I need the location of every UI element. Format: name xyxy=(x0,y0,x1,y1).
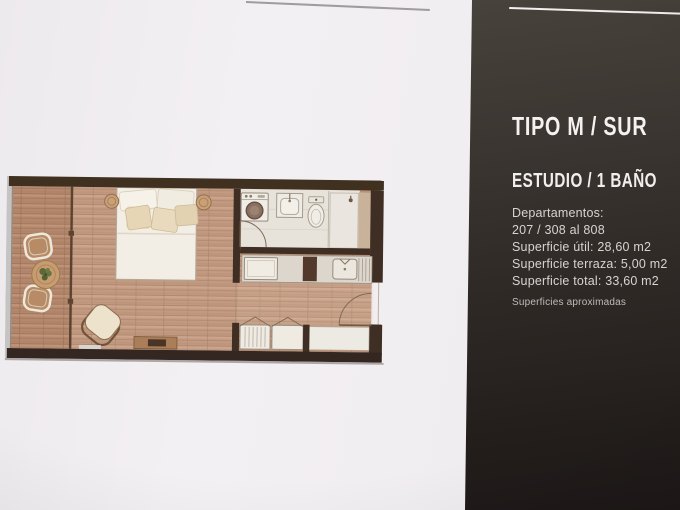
plan-subtitle: ESTUDIO / 1 BAÑO xyxy=(512,171,657,192)
cooktop xyxy=(303,257,317,282)
entry-hall-floor xyxy=(309,327,369,351)
detail-superficie-terraza: Superficie terraza: 5,00 m2 xyxy=(512,256,667,273)
plan-footnote: Superficies aproximadas xyxy=(512,297,626,308)
terrace-chair xyxy=(24,233,53,261)
page-top-edge-line xyxy=(246,1,430,11)
bed xyxy=(116,187,199,280)
bathroom xyxy=(240,189,371,255)
kitchen xyxy=(242,255,372,284)
duct-niche xyxy=(358,192,371,248)
floor-plan-image xyxy=(5,174,386,366)
nightstand xyxy=(196,195,211,210)
detail-superficie-util: Superficie útil: 28,60 m2 xyxy=(512,239,667,256)
brochure-photo: TIPO M / SUR ESTUDIO / 1 BAÑO Departamen… xyxy=(0,0,680,510)
plan-type-title: TIPO M / SUR xyxy=(512,113,647,140)
terrace-table-with-plant xyxy=(32,260,60,288)
toilet xyxy=(308,197,324,228)
kitchen-sink xyxy=(333,259,357,279)
detail-unit-numbers: 207 / 308 al 808 xyxy=(512,222,667,239)
washing-machine xyxy=(241,193,268,221)
detail-departamentos-label: Departamentos: xyxy=(512,205,667,222)
shower xyxy=(328,191,358,249)
nightstand xyxy=(105,194,119,208)
bathroom-sink xyxy=(276,193,302,217)
media-console xyxy=(134,337,177,350)
plan-details: Departamentos: 207 / 308 al 808 Superfic… xyxy=(512,205,667,290)
detail-superficie-total: Superficie total: 33,60 m2 xyxy=(512,273,667,290)
